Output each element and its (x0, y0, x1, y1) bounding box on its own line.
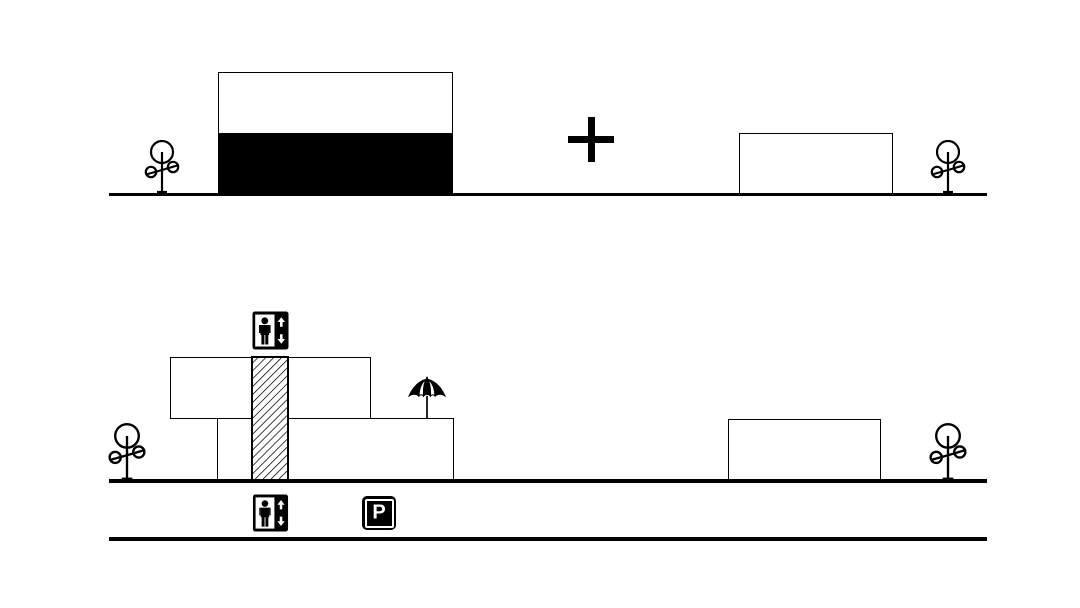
parking-sign: P (362, 496, 396, 530)
tree-icon (926, 422, 970, 482)
ground-line (109, 193, 987, 196)
tree-icon (105, 422, 149, 482)
ground-line (109, 479, 987, 483)
parking-sign-inner: P (365, 499, 394, 528)
tree-icon (142, 139, 182, 195)
elevation-diagram-canvas: P (0, 0, 1080, 608)
tree-icon (928, 139, 968, 195)
building-ground-story-solid (218, 133, 453, 195)
basement-line (109, 537, 987, 541)
small-building-outline (739, 133, 893, 195)
building-upper-story-outline (218, 72, 453, 134)
small-building-outline (728, 419, 881, 481)
parking-sign-label: P (372, 503, 385, 523)
upper-elevation-diagram (0, 0, 1080, 230)
elevator-icon (252, 311, 289, 350)
elevator-icon-basement (252, 494, 289, 532)
elevator-shaft-hatch (251, 356, 289, 481)
lower-elevation-diagram: P (0, 280, 1080, 608)
umbrella-icon (407, 376, 447, 418)
